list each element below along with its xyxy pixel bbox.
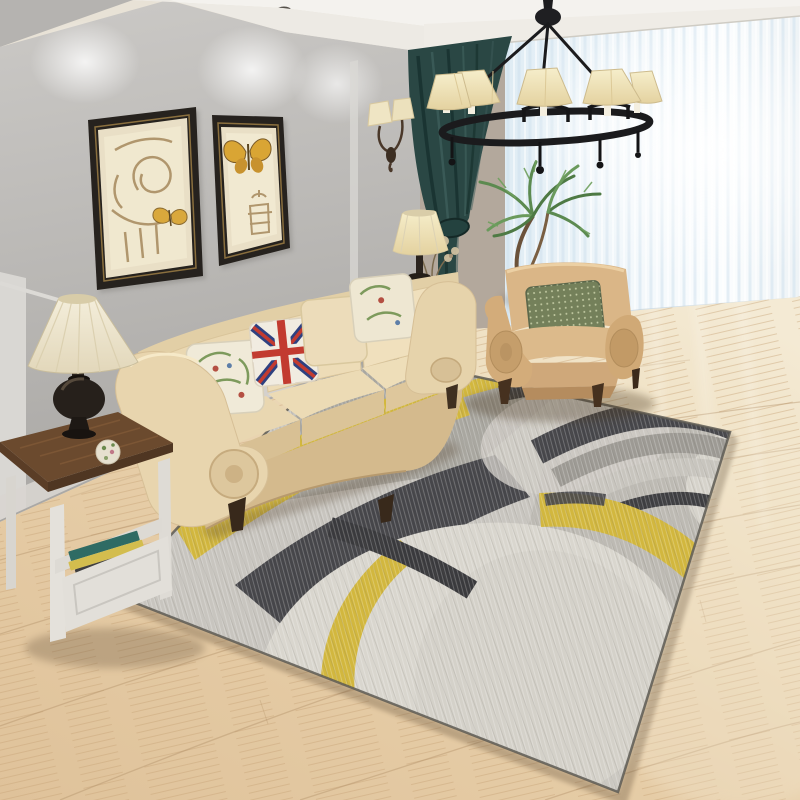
lamp-urn-base bbox=[53, 378, 105, 420]
decor-ball bbox=[96, 440, 120, 464]
living-room-photo bbox=[0, 0, 800, 800]
sconce-backplate bbox=[386, 147, 396, 163]
lamp-foot bbox=[62, 429, 96, 439]
table-leg bbox=[50, 504, 66, 642]
sofa-arm-scroll-center bbox=[225, 465, 243, 483]
window-glow bbox=[515, 25, 685, 215]
lamp-shade-top bbox=[403, 210, 435, 217]
floral-pillow-right bbox=[349, 273, 417, 343]
table-leg bbox=[6, 475, 16, 590]
sconce-shade bbox=[368, 101, 392, 126]
picture-frame-right bbox=[212, 115, 293, 269]
armchair-seat-front bbox=[518, 362, 622, 388]
armchair-right-arm-roll bbox=[610, 329, 638, 367]
sconce-shade bbox=[392, 98, 414, 121]
lamp-shade-top bbox=[58, 294, 96, 304]
scene-canvas bbox=[0, 0, 800, 800]
sofa-leg bbox=[446, 384, 458, 409]
spotlight-glow bbox=[30, 20, 140, 104]
spotlight-glow bbox=[197, 26, 307, 114]
picture-frame-left bbox=[88, 107, 206, 293]
sofa-right-arm-scroll bbox=[431, 358, 461, 382]
armchair-arm-scroll bbox=[500, 343, 512, 361]
chandelier-stem bbox=[543, 0, 553, 9]
